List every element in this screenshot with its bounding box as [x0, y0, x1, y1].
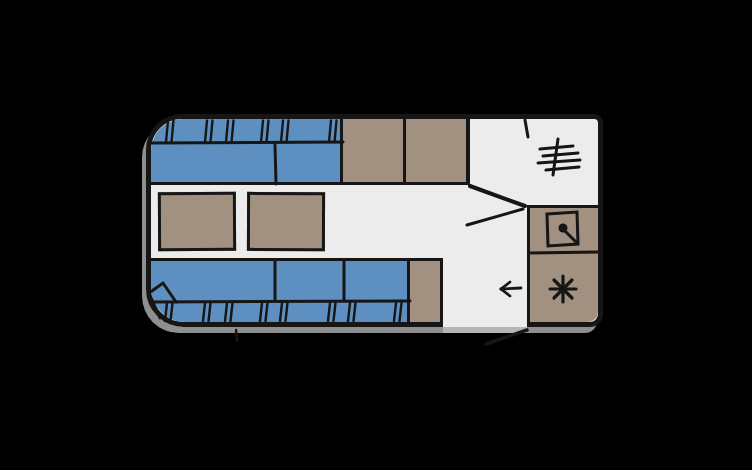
table-left [158, 192, 236, 251]
wardrobe-cabinet-right [406, 119, 470, 185]
lower-end-cabinet [410, 258, 443, 322]
upper-bench [151, 119, 343, 185]
lower-bench [151, 258, 410, 322]
underbody-tick-mark [236, 330, 237, 341]
kitchen-unit [527, 205, 598, 322]
caravan-interior [151, 119, 598, 322]
table-right [247, 192, 325, 251]
floorplan-canvas [0, 0, 752, 470]
entry-door-leaf [486, 330, 527, 344]
wardrobe-cabinet-left [343, 119, 406, 185]
